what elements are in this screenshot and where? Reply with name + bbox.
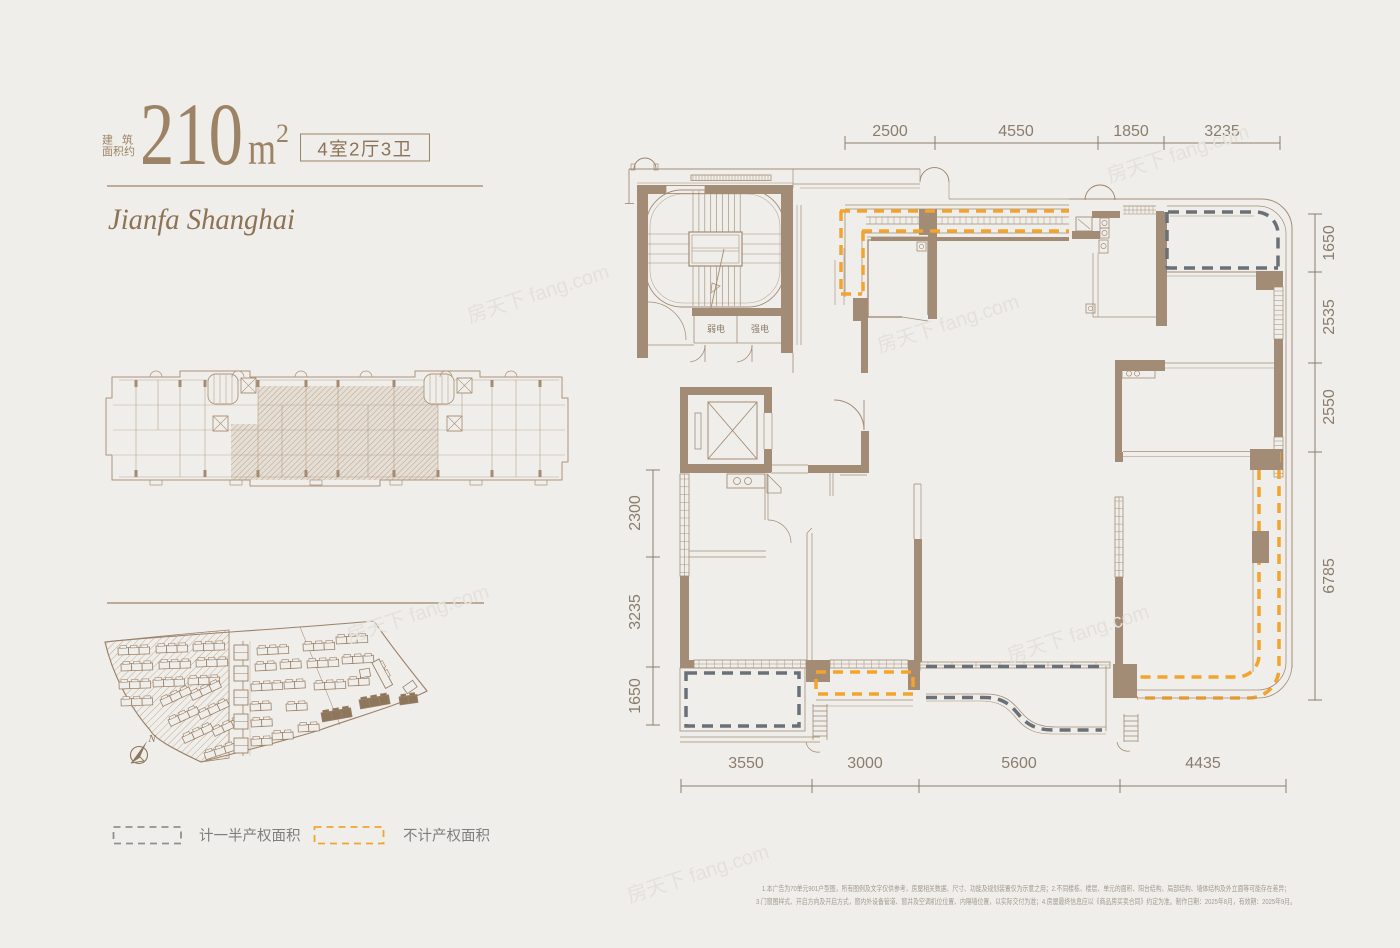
svg-text:建: 建 [102,133,113,147]
svg-text:210: 210 [140,86,243,184]
svg-text:2300: 2300 [627,495,644,531]
svg-text:3.门窗图样式、开启方向及开启方式，窗内外设备管道、窗井及空: 3.门窗图样式、开启方向及开启方式，窗内外设备管道、窗井及空调机位位置、内隔墙位… [756,896,1296,906]
svg-text:1650: 1650 [1321,225,1338,261]
svg-text:4435: 4435 [1185,755,1221,772]
svg-text:3000: 3000 [847,755,883,772]
svg-text:筑: 筑 [122,133,133,147]
svg-text:N: N [147,733,156,745]
svg-text:不计产权面积: 不计产权面积 [403,828,490,845]
svg-text:3550: 3550 [728,755,764,772]
svg-text:1850: 1850 [1113,123,1149,140]
svg-text:6785: 6785 [1321,558,1338,594]
svg-text:1650: 1650 [627,678,644,714]
svg-text:Jianfa Shanghai: Jianfa Shanghai [108,203,295,236]
svg-text:2500: 2500 [872,123,908,140]
svg-text:2550: 2550 [1321,389,1338,425]
svg-text:4室2厅3卫: 4室2厅3卫 [317,139,412,160]
svg-text:弱电: 弱电 [707,323,725,334]
svg-text:计一半产权面积: 计一半产权面积 [199,828,301,845]
svg-text:1.本广告为70单元901户型图，所有图例及文字仅供参考，房: 1.本广告为70单元901户型图，所有图例及文字仅供参考，房屋相关数据、尺寸、功… [762,883,1290,893]
svg-text:m: m [248,123,276,174]
svg-text:4550: 4550 [998,123,1034,140]
svg-text:面积约: 面积约 [102,145,135,158]
svg-text:2: 2 [276,119,289,148]
svg-text:5600: 5600 [1001,755,1037,772]
svg-text:3235: 3235 [627,594,644,630]
svg-text:强电: 强电 [751,323,769,334]
svg-text:2535: 2535 [1321,299,1338,335]
